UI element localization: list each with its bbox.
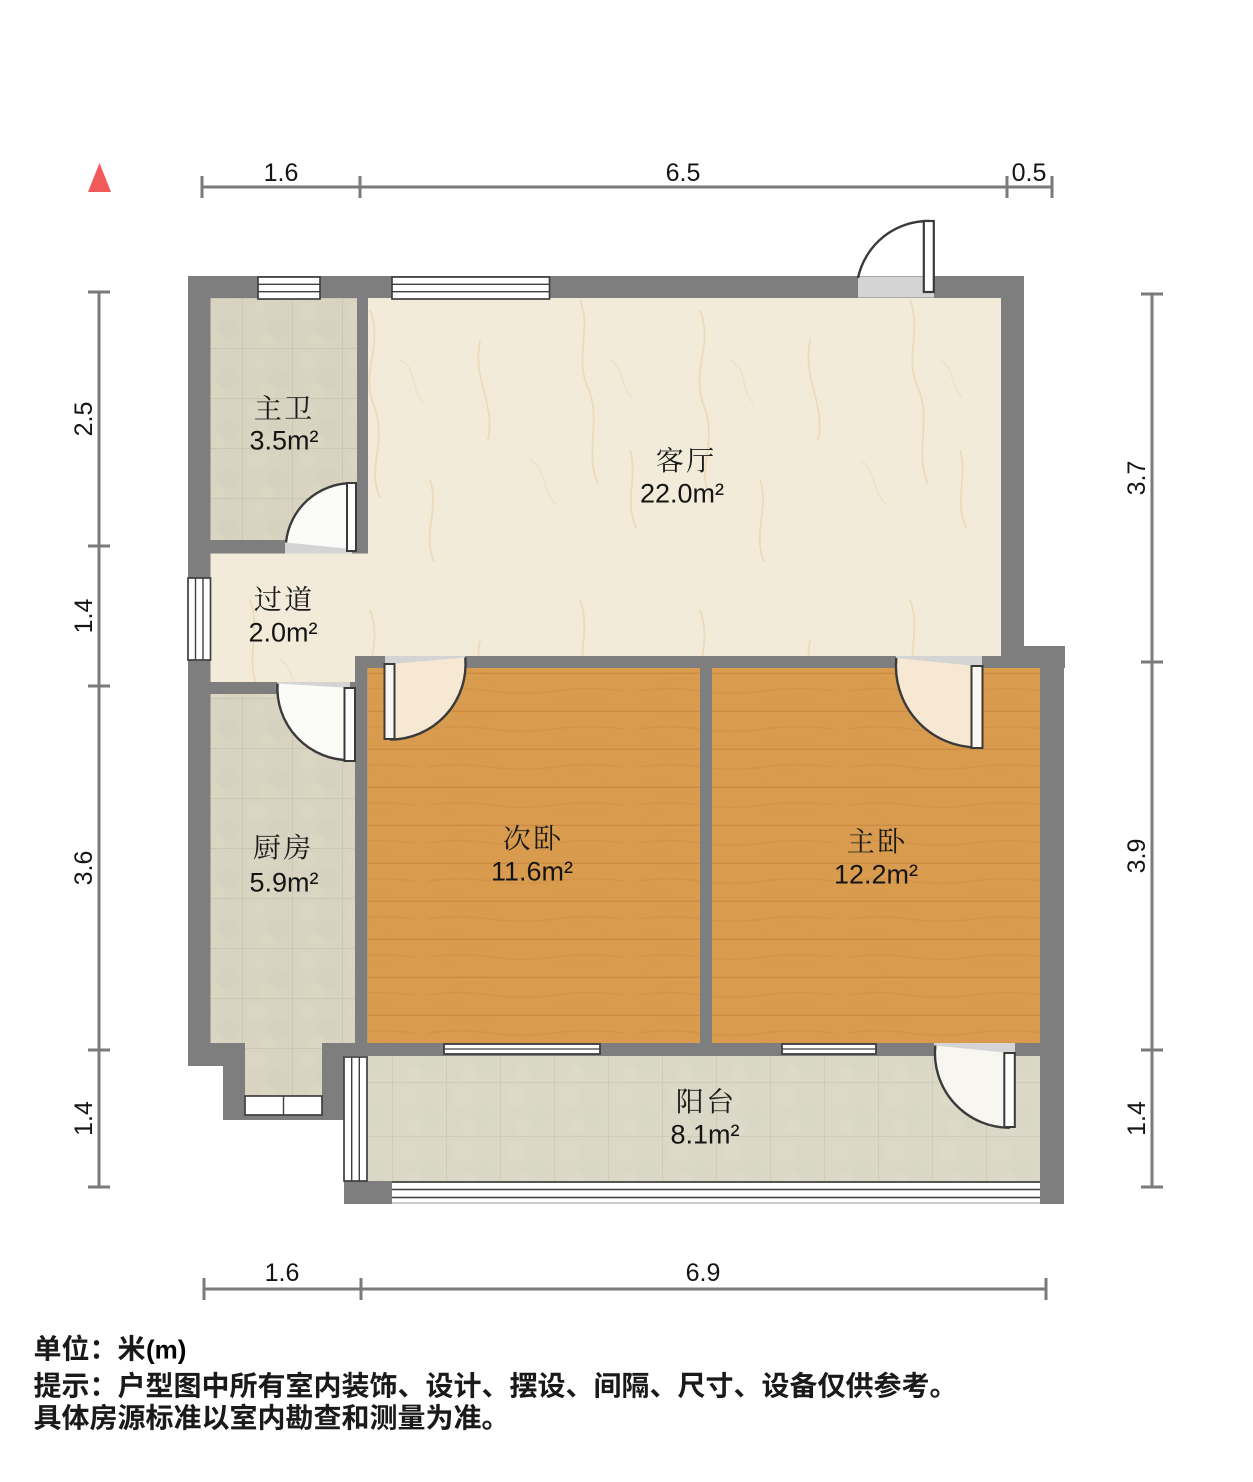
svg-text:12.2m²: 12.2m² [834, 860, 918, 890]
svg-text:0.5: 0.5 [1012, 159, 1047, 187]
svg-text:3.7: 3.7 [1123, 461, 1151, 496]
svg-text:3.6: 3.6 [70, 851, 98, 886]
svg-text:1.4: 1.4 [70, 1101, 98, 1136]
svg-text:8.1m²: 8.1m² [670, 1120, 739, 1150]
svg-text:2.5: 2.5 [70, 402, 98, 437]
svg-text:6.5: 6.5 [666, 159, 701, 187]
svg-text:6.9: 6.9 [686, 1259, 721, 1287]
svg-text:3.5m²: 3.5m² [249, 426, 318, 456]
svg-text:(m): (m) [146, 1335, 186, 1365]
svg-text:3.9: 3.9 [1123, 839, 1151, 874]
svg-text:5.9m²: 5.9m² [249, 868, 318, 898]
svg-text:2.0m²: 2.0m² [248, 618, 317, 648]
svg-text:1.4: 1.4 [70, 599, 98, 634]
svg-text:1.6: 1.6 [264, 159, 299, 187]
svg-text:11.6m²: 11.6m² [491, 857, 573, 887]
svg-text:1.6: 1.6 [265, 1259, 300, 1287]
svg-text:22.0m²: 22.0m² [640, 479, 724, 509]
svg-text:1.4: 1.4 [1123, 1101, 1151, 1136]
